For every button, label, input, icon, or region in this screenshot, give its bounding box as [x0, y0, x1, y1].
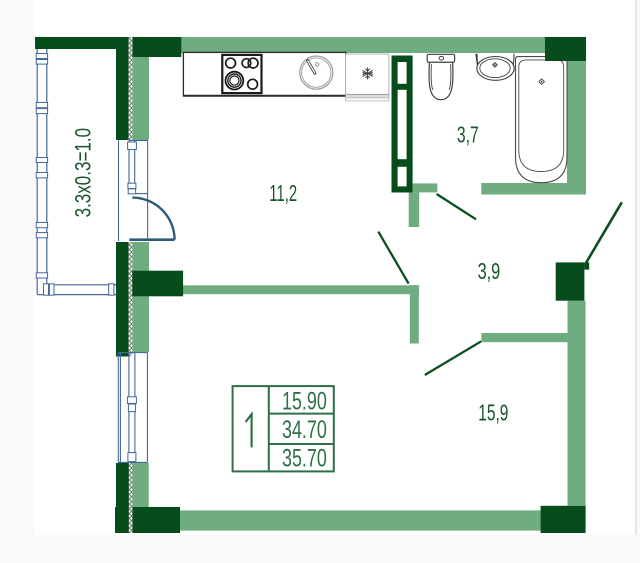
svg-text:15,9: 15,9 [478, 400, 508, 426]
svg-text:3.3х0.3=1.0: 3.3х0.3=1.0 [71, 128, 96, 218]
svg-text:3,9: 3,9 [478, 258, 501, 284]
svg-text:11,2: 11,2 [269, 180, 297, 206]
svg-text:35.70: 35.70 [282, 445, 327, 473]
svg-text:15.90: 15.90 [282, 388, 327, 416]
svg-text:34.70: 34.70 [282, 416, 327, 444]
svg-text:3,7: 3,7 [457, 121, 479, 147]
